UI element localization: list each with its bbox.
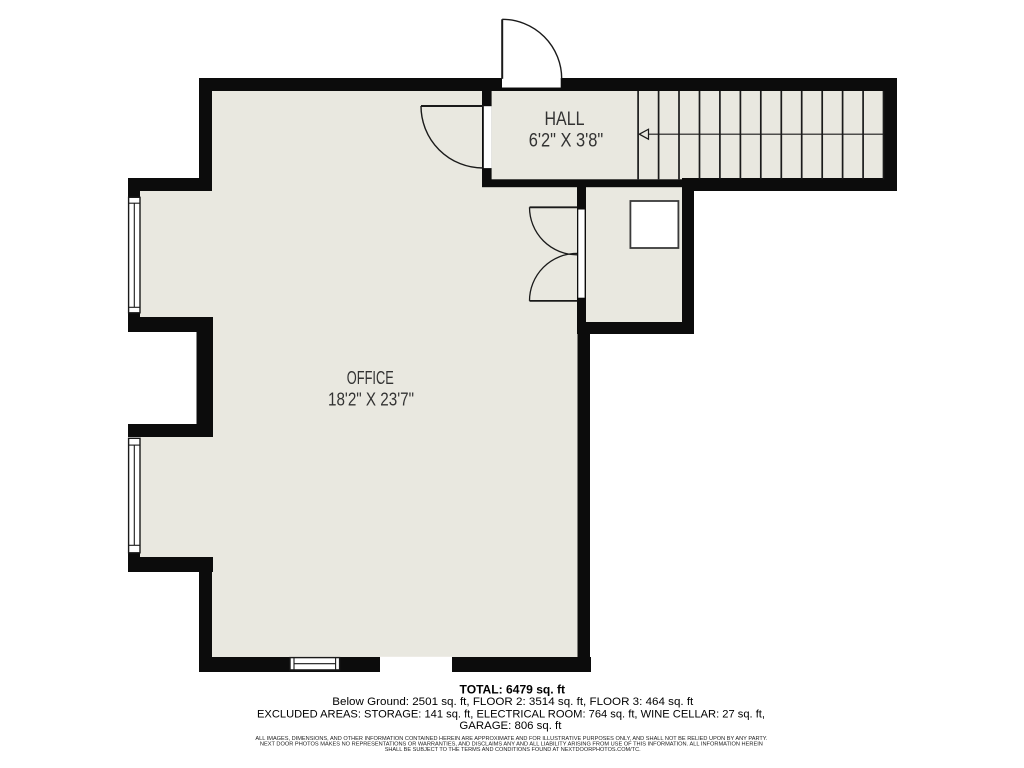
svg-text:18'2" X 23'7": 18'2" X 23'7" bbox=[328, 389, 414, 409]
svg-text:EXCLUDED AREAS: STORAGE: 141 s: EXCLUDED AREAS: STORAGE: 141 sq. ft, ELE… bbox=[257, 709, 765, 721]
svg-text:Below Ground: 2501 sq. ft, FLO: Below Ground: 2501 sq. ft, FLOOR 2: 3514… bbox=[332, 696, 693, 708]
svg-text:TOTAL: 6479 sq. ft: TOTAL: 6479 sq. ft bbox=[460, 682, 566, 696]
svg-text:OFFICE: OFFICE bbox=[347, 368, 394, 388]
svg-text:GARAGE: 806 sq. ft: GARAGE: 806 sq. ft bbox=[459, 720, 561, 732]
svg-text:6'2" X 3'8": 6'2" X 3'8" bbox=[529, 129, 604, 151]
svg-text:HALL: HALL bbox=[545, 108, 585, 130]
svg-text:SHALL BE SUBJECT TO THE TERMS: SHALL BE SUBJECT TO THE TERMS AND CONDIT… bbox=[385, 747, 641, 753]
